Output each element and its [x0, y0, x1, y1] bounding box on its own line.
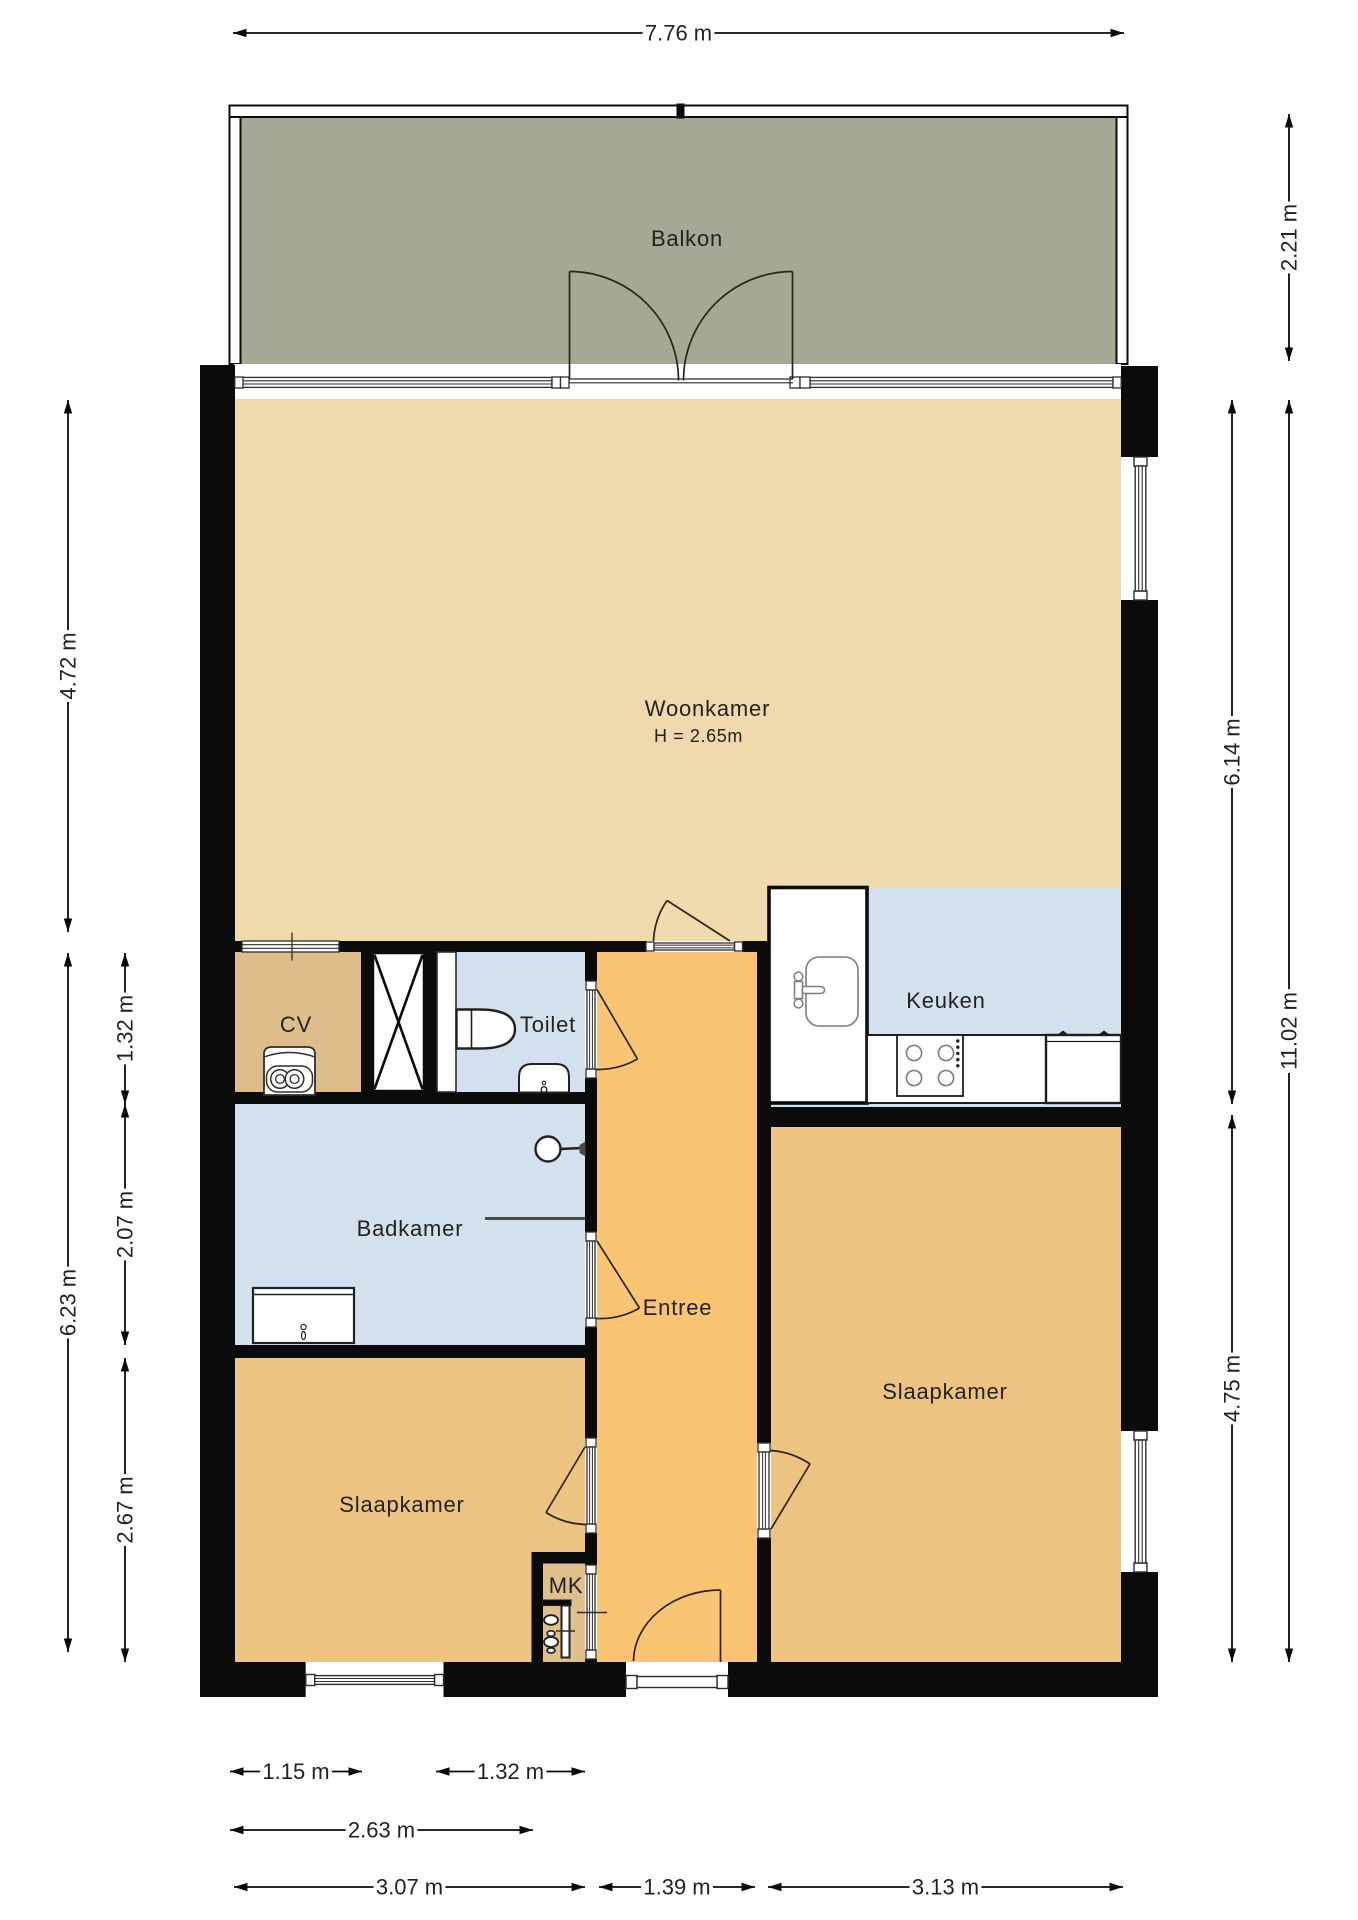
- svg-text:Woonkamer: Woonkamer: [645, 696, 770, 721]
- svg-text:1.15 m: 1.15 m: [262, 1759, 329, 1784]
- svg-text:Balkon: Balkon: [651, 226, 723, 251]
- svg-text:3.07 m: 3.07 m: [376, 1874, 443, 1899]
- svg-text:H = 2.65m: H = 2.65m: [654, 726, 743, 746]
- svg-text:Toilet: Toilet: [520, 1012, 576, 1037]
- svg-text:4.75 m: 4.75 m: [1219, 1355, 1244, 1422]
- svg-text:11.02 m: 11.02 m: [1276, 992, 1301, 1070]
- svg-text:6.23 m: 6.23 m: [55, 1269, 80, 1336]
- svg-text:Keuken: Keuken: [906, 988, 985, 1013]
- svg-text:Entree: Entree: [643, 1295, 713, 1320]
- svg-text:Slaapkamer: Slaapkamer: [882, 1379, 1007, 1404]
- svg-text:MK: MK: [549, 1573, 584, 1598]
- svg-text:CV: CV: [280, 1012, 312, 1037]
- svg-text:1.32 m: 1.32 m: [112, 995, 137, 1062]
- svg-text:Badkamer: Badkamer: [357, 1216, 464, 1241]
- svg-text:1.39 m: 1.39 m: [643, 1874, 710, 1899]
- svg-text:2.63 m: 2.63 m: [348, 1817, 415, 1842]
- svg-text:1.32 m: 1.32 m: [477, 1759, 544, 1784]
- svg-text:6.14 m: 6.14 m: [1219, 718, 1244, 785]
- svg-text:2.67 m: 2.67 m: [112, 1476, 137, 1543]
- svg-text:7.76 m: 7.76 m: [645, 20, 712, 45]
- svg-text:2.07 m: 2.07 m: [112, 1191, 137, 1258]
- svg-text:4.72 m: 4.72 m: [55, 632, 80, 699]
- svg-text:2.21 m: 2.21 m: [1276, 204, 1301, 271]
- svg-text:3.13 m: 3.13 m: [912, 1874, 979, 1899]
- svg-text:Slaapkamer: Slaapkamer: [339, 1492, 464, 1517]
